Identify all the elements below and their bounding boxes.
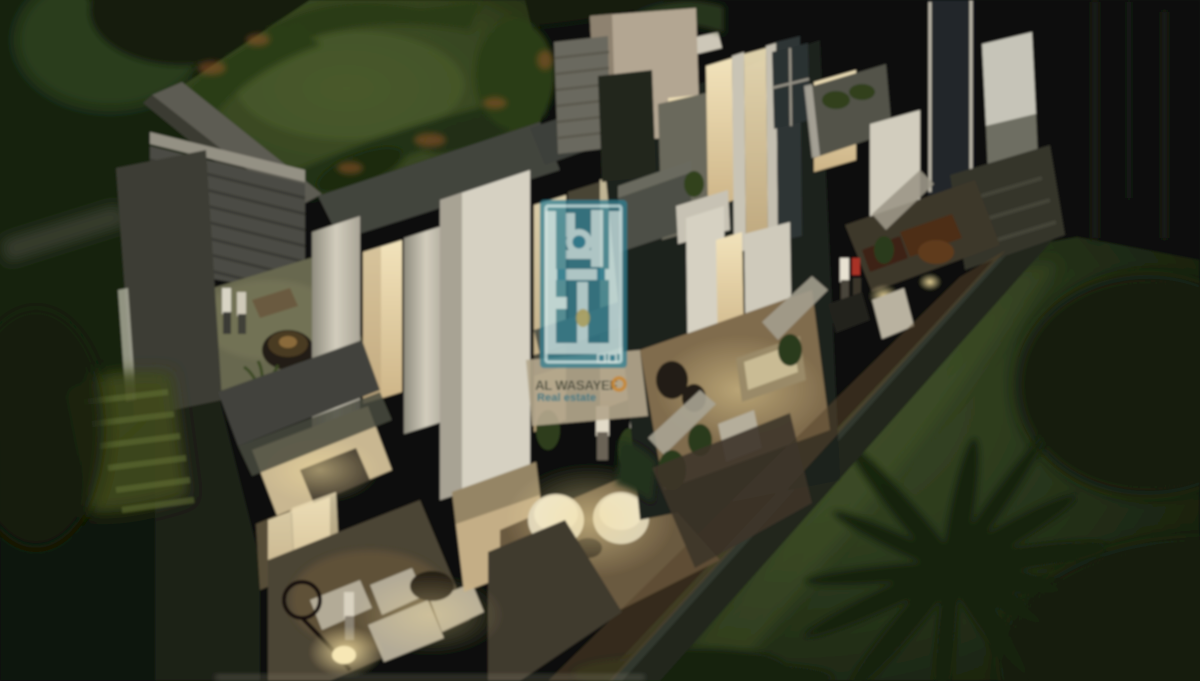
svg-text:Real estate: Real estate bbox=[537, 392, 596, 404]
svg-text:AL WASAYEF: AL WASAYEF bbox=[535, 378, 618, 393]
